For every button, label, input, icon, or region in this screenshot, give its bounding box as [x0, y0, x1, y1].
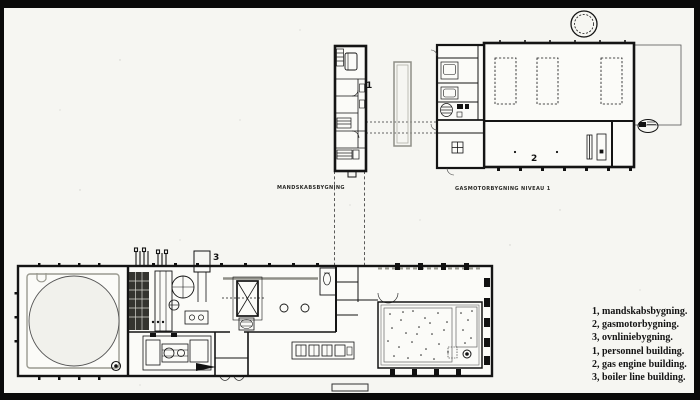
- scanned-plan-page: 1 2 3 MANDSKABSBYGNING GASMOTORBYGNING N…: [0, 0, 700, 400]
- legend-line: 1, personnel building.: [592, 345, 692, 358]
- building-marker-2: 2: [531, 155, 537, 164]
- building-marker-3: 3: [213, 254, 219, 263]
- gas-building-annex: [431, 45, 484, 175]
- legend-block: 1, mandskabsbygning. 2, gasmotorbygning.…: [592, 305, 692, 384]
- chimney-circle: [571, 11, 597, 37]
- personnel-building-caption: MANDSKABSBYGNING: [277, 185, 345, 191]
- gas-engine-building-caption: GASMOTORBYGNING NIVEAU 1: [455, 186, 551, 192]
- legend-line: 3, boiler line building.: [592, 371, 692, 384]
- building-marker-1: 1: [366, 82, 372, 91]
- fuel-tank-oval: [638, 120, 658, 133]
- legend-line: 1, mandskabsbygning.: [592, 305, 692, 318]
- boiler-building-plan: [15, 248, 493, 391]
- gas-engine-building-plan: [431, 11, 681, 175]
- legend-line: 2, gas engine building.: [592, 358, 692, 371]
- legend-line: 2, gasmotorbygning.: [592, 318, 692, 331]
- legend-line: 3, ovnliniebygning.: [592, 331, 692, 344]
- personnel-building-plan: [335, 46, 366, 177]
- switchgear-block: [129, 272, 149, 330]
